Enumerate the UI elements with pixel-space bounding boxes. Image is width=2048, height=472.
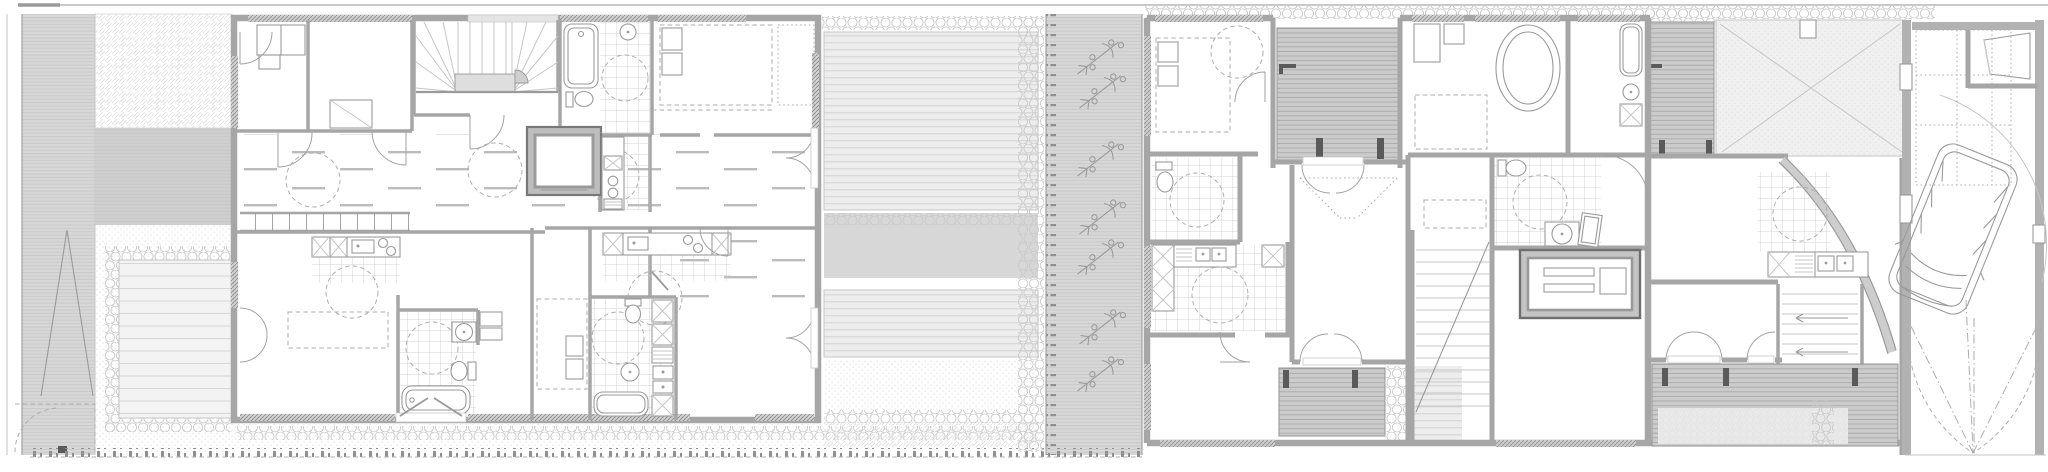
ne-corner-room [1968, 30, 2038, 88]
se-kitchen [1758, 172, 1868, 277]
bike-strip-fence [1046, 14, 1056, 455]
turning-arc [1940, 95, 2047, 282]
west-building [231, 15, 819, 422]
hedge-column [1018, 16, 1044, 452]
terrace-lower-dark [1279, 366, 1462, 440]
west-garden-deck [105, 246, 232, 432]
middle-gardens [822, 16, 1044, 452]
roof-garden-stipple [1716, 20, 1906, 156]
apartment2-bathroom [592, 299, 676, 417]
storage-box [1520, 250, 1640, 318]
south-fence [30, 448, 1142, 457]
terrace-ne-dark [1646, 10, 1716, 156]
bike-strip [1046, 14, 1142, 456]
floor-plan-page [0, 0, 2048, 472]
east-bathroom-nw [1152, 158, 1238, 240]
drive-axis [1966, 300, 1973, 452]
ne-bath-fixtures [1620, 24, 1642, 126]
east-building [1144, 6, 1935, 455]
gate-swings [1908, 318, 2041, 453]
floor-plan-canvas [0, 0, 2048, 472]
projection-dotted [1916, 30, 2011, 185]
kitchenette-strip [602, 137, 650, 210]
elevator-icon [527, 127, 601, 195]
carport [1879, 20, 2047, 455]
balcony-railing [240, 213, 410, 231]
terrace-upper-dark [1277, 28, 1400, 165]
west-road-strip [7, 14, 95, 455]
